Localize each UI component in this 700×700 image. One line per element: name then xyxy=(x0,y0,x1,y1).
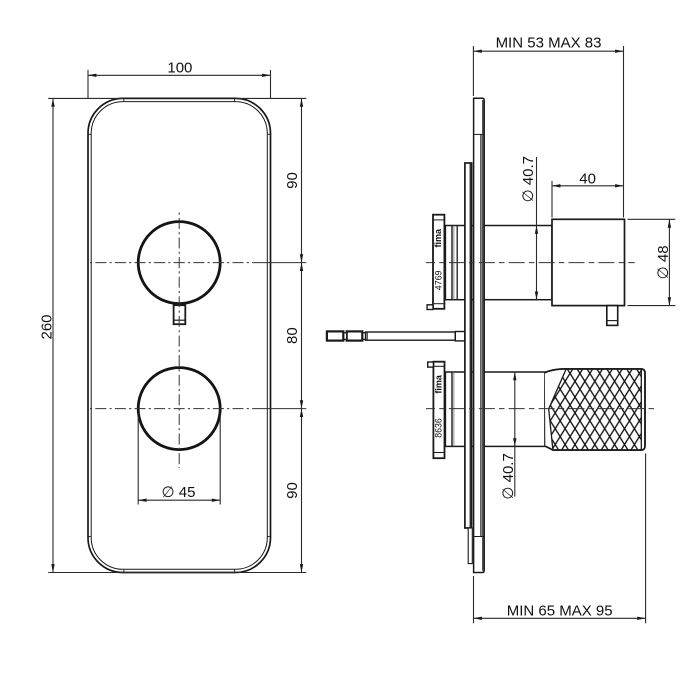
svg-text:∅ 40.7: ∅ 40.7 xyxy=(520,156,537,202)
svg-text:4769: 4769 xyxy=(433,271,443,291)
svg-text:8636: 8636 xyxy=(434,418,444,438)
svg-text:260: 260 xyxy=(39,314,56,339)
svg-text:40: 40 xyxy=(579,170,596,187)
svg-text:90: 90 xyxy=(284,172,301,189)
svg-text:∅ 40.7: ∅ 40.7 xyxy=(500,453,517,499)
svg-text:∅ 45: ∅ 45 xyxy=(162,484,196,501)
svg-text:MIN 53 MAX 83: MIN 53 MAX 83 xyxy=(496,35,602,52)
svg-text:∅ 48: ∅ 48 xyxy=(655,245,672,279)
svg-text:100: 100 xyxy=(167,60,192,77)
svg-text:fima: fima xyxy=(433,228,443,248)
svg-text:80: 80 xyxy=(284,327,301,344)
svg-text:MIN 65 MAX 95: MIN 65 MAX 95 xyxy=(507,602,613,619)
svg-text:90: 90 xyxy=(284,482,301,499)
svg-text:fima: fima xyxy=(433,374,443,394)
